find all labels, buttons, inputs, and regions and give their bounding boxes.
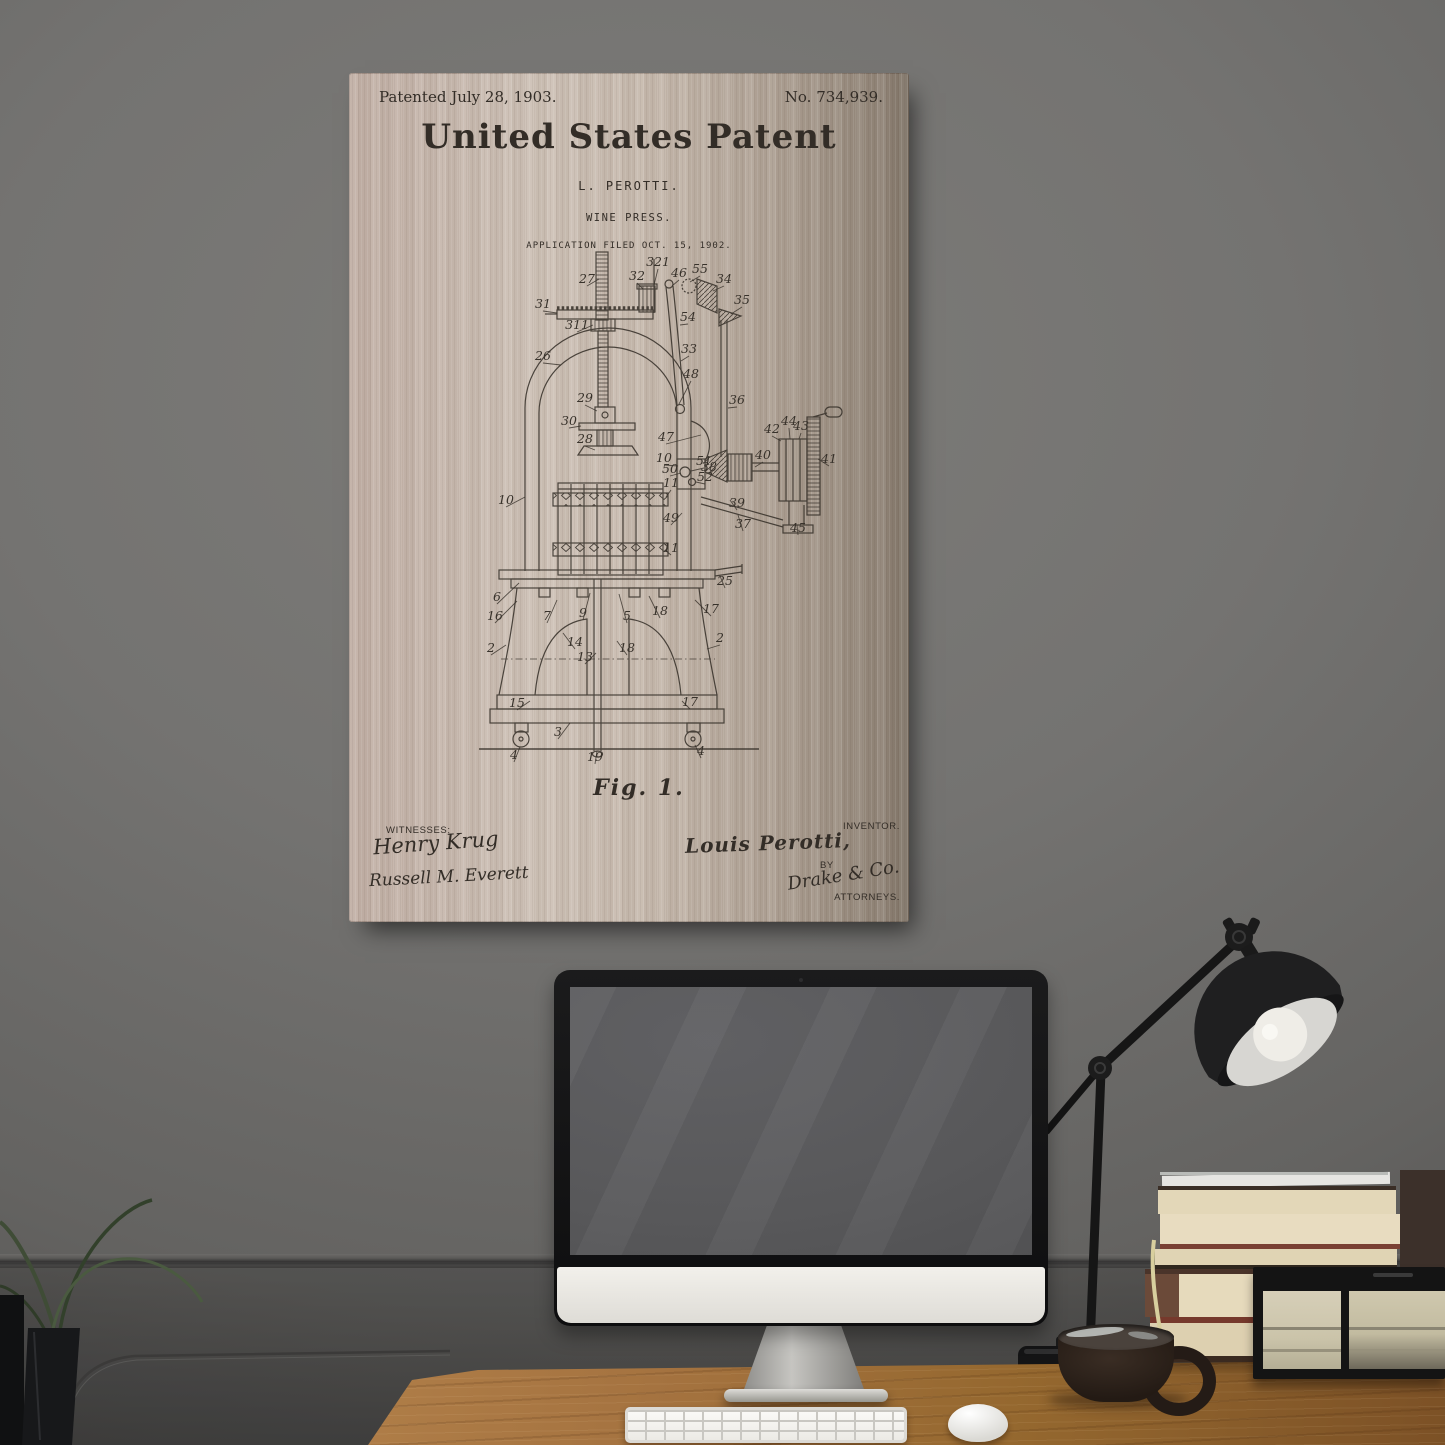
part-label-4: 4 (696, 743, 705, 758)
dark-vessel (0, 1295, 24, 1445)
imac-stand-base (724, 1389, 888, 1402)
patent-date: Patented July 28, 1903. (379, 88, 556, 106)
part-label-25: 25 (716, 573, 733, 588)
part-label-6: 6 (493, 589, 501, 604)
part-label-31: 31 (535, 296, 551, 311)
part-label-41: 41 (820, 451, 837, 466)
part-label-55: 55 (692, 261, 708, 276)
part-label-15: 15 (509, 695, 525, 710)
patent-invention-title: WINE PRESS. (349, 212, 909, 224)
lamp-pole (1090, 1072, 1101, 1346)
part-label-34: 34 (716, 271, 732, 286)
patent-number: No. 734,939. (785, 88, 883, 106)
imac-screen (570, 987, 1032, 1255)
potted-plant (0, 1160, 260, 1445)
attorneys-label: ATTORNEYS. (834, 892, 900, 903)
patent-print-poster: Patented July 28, 1903. No. 734,939. Uni… (349, 73, 909, 922)
part-label-43: 43 (792, 418, 809, 433)
part-label-17: 17 (703, 601, 719, 616)
part-label-11: 11 (663, 540, 679, 555)
part-label-27: 27 (578, 271, 595, 286)
part-label-7: 7 (543, 608, 551, 623)
part-label-40: 40 (754, 447, 771, 462)
part-label-54: 54 (680, 309, 696, 324)
lamp-shade (1163, 920, 1365, 1113)
imac-computer (554, 970, 1048, 1326)
keyboard (625, 1407, 907, 1443)
part-label-9: 9 (579, 605, 587, 620)
part-label-14: 14 (567, 634, 583, 649)
part-label-19: 19 (587, 749, 603, 764)
part-label-2: 2 (486, 640, 495, 655)
part-label-11: 11 (663, 475, 679, 490)
part-label-26: 26 (534, 348, 551, 363)
part-label-37: 37 (735, 516, 751, 531)
patent-title: United States Patent (349, 117, 909, 157)
patent-application-line: APPLICATION FILED OCT. 15, 1902. (349, 241, 909, 251)
part-label-39: 39 (729, 495, 745, 510)
part-label-33: 33 (681, 341, 697, 356)
part-label-29: 29 (576, 390, 593, 405)
part-label-30: 30 (561, 413, 577, 428)
inventor-label: INVENTOR. (843, 821, 900, 832)
part-label-16: 16 (487, 608, 503, 623)
part-label-2: 2 (715, 630, 724, 645)
part-label-42: 42 (763, 421, 780, 436)
keyboard-keys (628, 1410, 904, 1440)
part-label-45: 45 (789, 520, 806, 535)
imac-camera-dot (799, 978, 803, 982)
plant-vase (22, 1328, 80, 1445)
part-label-18: 18 (619, 640, 635, 655)
part-label-17: 17 (682, 694, 698, 709)
coffee-mug (1058, 1324, 1180, 1402)
wine-press-machine (479, 252, 842, 757)
part-label-38: 38 (701, 459, 717, 474)
part-label-10: 10 (498, 492, 514, 507)
imac-chin (557, 1267, 1045, 1323)
book (1160, 1214, 1400, 1248)
part-label-28: 28 (576, 431, 593, 446)
patent-inventor-line: L. PEROTTI. (349, 179, 909, 193)
part-label-35: 35 (734, 292, 750, 307)
glass-display-box (1253, 1267, 1445, 1379)
figure-label: Fig. 1. (559, 775, 719, 801)
part-label-13: 13 (577, 649, 593, 664)
book (1158, 1186, 1396, 1214)
part-label-36: 36 (729, 392, 745, 407)
glass-pane-front (1349, 1291, 1445, 1369)
part-label-321: 321 (646, 254, 670, 269)
lamp-balance-rod (1046, 1068, 1100, 1132)
part-label-49: 49 (662, 510, 679, 525)
part-label-311: 311 (565, 317, 589, 332)
room-scene: Patented July 28, 1903. No. 734,939. Uni… (0, 0, 1445, 1445)
part-label-18: 18 (652, 603, 668, 618)
part-label-32: 32 (629, 268, 645, 283)
part-label-48: 48 (682, 366, 699, 381)
glass-pane-left (1263, 1291, 1341, 1369)
part-label-3: 3 (554, 724, 562, 739)
part-label-4: 4 (509, 747, 518, 762)
part-label-47: 47 (657, 429, 674, 444)
lamp-elbow-joint (1088, 1056, 1112, 1080)
part-label-50: 50 (662, 461, 678, 476)
part-label-5: 5 (623, 608, 631, 623)
part-label-46: 46 (670, 265, 687, 280)
mouse (948, 1404, 1008, 1442)
